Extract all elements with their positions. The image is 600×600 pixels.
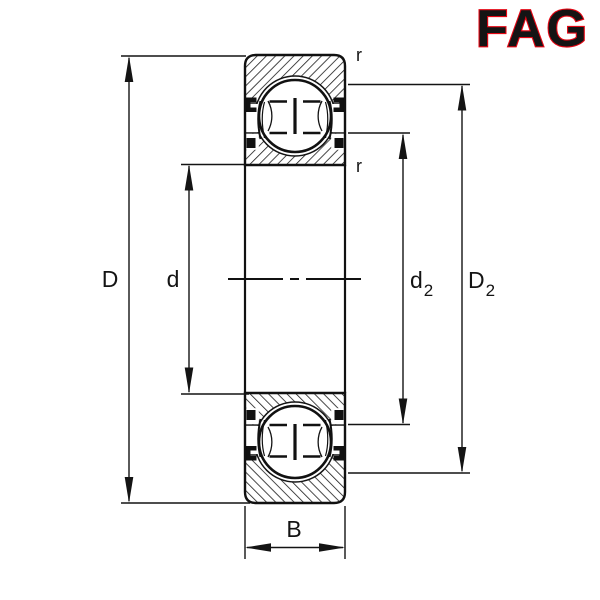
dim-label-d2: d2 bbox=[410, 267, 433, 300]
bearing-section-bottom bbox=[245, 393, 345, 503]
bearing-cross-section-diagram: D d d2 D2 B r r FAG bbox=[0, 0, 600, 600]
dim-label-D2: D2 bbox=[468, 267, 495, 300]
bearing-section-top bbox=[245, 55, 345, 165]
r-label-outer: r bbox=[356, 45, 362, 65]
r-label-inner: r bbox=[356, 156, 362, 176]
dimension-D2 bbox=[348, 85, 470, 474]
dim-label-D: D bbox=[102, 266, 119, 292]
bearing-drawing-page: D d d2 D2 B r r FAG bbox=[0, 0, 600, 600]
dim-label-d: d bbox=[167, 266, 180, 292]
fag-logo: FAG bbox=[476, 0, 589, 58]
dim-label-B: B bbox=[286, 516, 301, 542]
